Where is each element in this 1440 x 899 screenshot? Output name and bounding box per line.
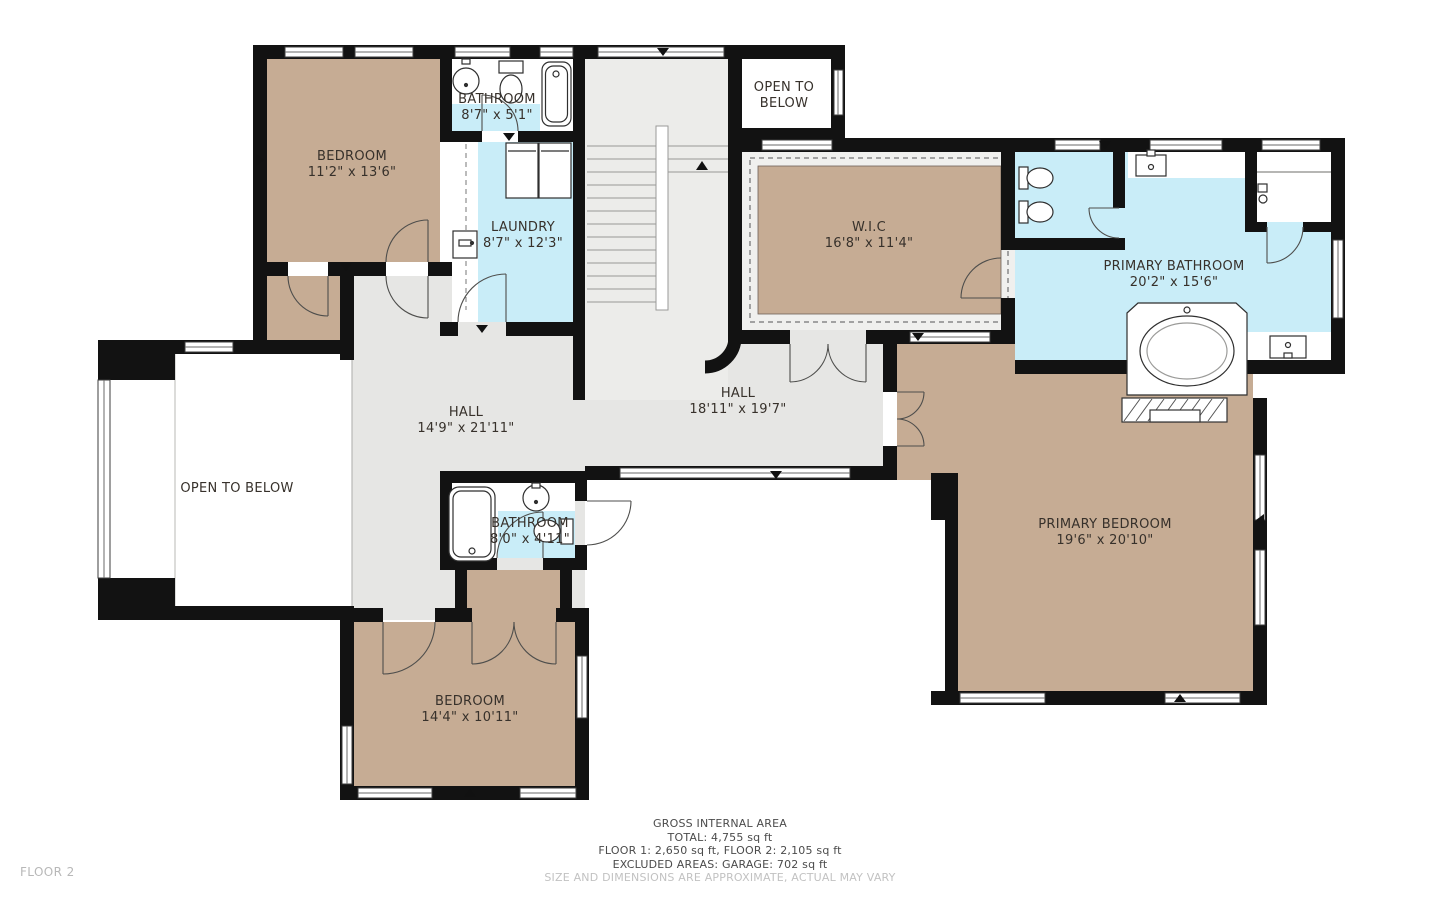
room-label-primary-bathroom: PRIMARY BATHROOM 20'2" x 15'6" bbox=[1103, 259, 1244, 291]
shower-floor bbox=[1257, 152, 1331, 222]
floor-plan-page: BEDROOM 11'2" x 13'6" BATHROOM 8'7" x 5'… bbox=[0, 0, 1440, 899]
room-label-hall-east: HALL 18'11" x 19'7" bbox=[689, 386, 786, 418]
dryer-icon bbox=[539, 143, 571, 198]
room-name: BATHROOM bbox=[491, 516, 569, 531]
toilet-icon bbox=[1019, 167, 1053, 189]
room-name: PRIMARY BEDROOM bbox=[1038, 517, 1171, 532]
room-dims: 11'2" x 13'6" bbox=[308, 165, 397, 181]
oval-bathtub-icon bbox=[1127, 303, 1247, 395]
room-dims: 8'7" x 12'3" bbox=[483, 236, 563, 252]
vestibule-floor bbox=[467, 570, 560, 622]
room-label-primary-bedroom: PRIMARY BEDROOM 19'6" x 20'10" bbox=[1038, 517, 1171, 549]
room-dims: 14'4" x 10'11" bbox=[421, 710, 518, 726]
room-dims: 16'8" x 11'4" bbox=[825, 236, 914, 252]
bidet-icon bbox=[1019, 201, 1053, 223]
room-dims: 19'6" x 20'10" bbox=[1038, 533, 1171, 549]
room-label-open-to-below-top: OPEN TO BELOW bbox=[738, 80, 830, 112]
footer-excluded: EXCLUDED AREAS: GARAGE: 702 sq ft bbox=[0, 858, 1440, 872]
footer-floors: FLOOR 1: 2,650 sq ft, FLOOR 2: 2,105 sq … bbox=[0, 844, 1440, 858]
utility-box-icon bbox=[453, 231, 477, 258]
room-name: BEDROOM bbox=[435, 694, 505, 709]
bathtub-icon bbox=[449, 487, 495, 561]
room-label-wic: W.I.C 16'8" x 11'4" bbox=[825, 220, 914, 252]
room-label-bathroom-2: BATHROOM 8'0" x 4'11" bbox=[490, 516, 570, 548]
sink-icon bbox=[1270, 336, 1306, 358]
fireplace-icon bbox=[1122, 398, 1227, 422]
room-label-bedroom-2: BEDROOM 14'4" x 10'11" bbox=[421, 694, 518, 726]
room-name: OPEN TO BELOW bbox=[754, 80, 814, 111]
room-name: OPEN TO BELOW bbox=[180, 481, 293, 496]
room-name: LAUNDRY bbox=[491, 220, 555, 235]
footer-gross-area-title: GROSS INTERNAL AREA bbox=[0, 817, 1440, 831]
washer-icon bbox=[506, 143, 538, 198]
floor-plan-svg bbox=[0, 0, 1440, 899]
room-dims: 20'2" x 15'6" bbox=[1103, 275, 1244, 291]
room-label-bedroom-1: BEDROOM 11'2" x 13'6" bbox=[308, 149, 397, 181]
room-dims: 8'0" x 4'11" bbox=[490, 532, 570, 548]
room-dims: 8'7" x 5'1" bbox=[458, 108, 536, 124]
room-label-open-to-below-left: OPEN TO BELOW bbox=[180, 481, 293, 497]
footer: GROSS INTERNAL AREA TOTAL: 4,755 sq ft F… bbox=[0, 817, 1440, 885]
stairs bbox=[585, 59, 728, 400]
room-name: BEDROOM bbox=[317, 149, 387, 164]
room-label-laundry: LAUNDRY 8'7" x 12'3" bbox=[483, 220, 563, 252]
room-label-bathroom-1: BATHROOM 8'7" x 5'1" bbox=[458, 92, 536, 124]
room-label-hall-west: HALL 14'9" x 21'11" bbox=[417, 405, 514, 437]
room-name: BATHROOM bbox=[458, 92, 536, 107]
footer-disclaimer: SIZE AND DIMENSIONS ARE APPROXIMATE, ACT… bbox=[0, 871, 1440, 885]
room-dims: 14'9" x 21'11" bbox=[417, 421, 514, 437]
room-name: HALL bbox=[449, 405, 483, 420]
room-name: HALL bbox=[721, 386, 755, 401]
bathtub-icon bbox=[542, 62, 571, 126]
room-name: PRIMARY BATHROOM bbox=[1103, 259, 1244, 274]
room-name: W.I.C bbox=[852, 220, 886, 235]
room-dims: 18'11" x 19'7" bbox=[689, 402, 786, 418]
floor-label: FLOOR 2 bbox=[20, 865, 75, 879]
footer-total: TOTAL: 4,755 sq ft bbox=[0, 831, 1440, 845]
